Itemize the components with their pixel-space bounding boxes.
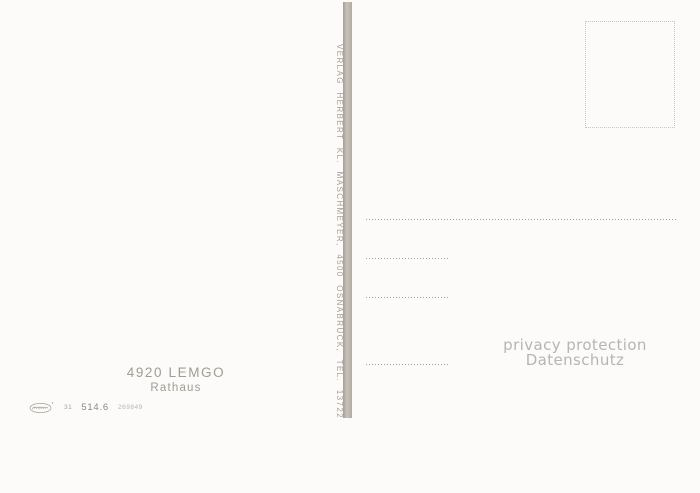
- imprint-prefix: 31: [64, 404, 72, 411]
- privacy-watermark-line2: Datenschutz: [480, 353, 670, 368]
- address-line: [366, 258, 450, 259]
- address-line: [366, 297, 450, 298]
- imprint-series-number: 514.6: [81, 402, 109, 413]
- caption-town: 4920 LEMGO: [106, 364, 246, 381]
- privacy-watermark: privacy protection Datenschutz: [480, 338, 670, 368]
- address-line: [366, 219, 676, 220]
- center-divider-line: [343, 2, 352, 418]
- printer-script-logo-icon: [29, 401, 55, 414]
- stamp-placeholder-box: [585, 21, 675, 128]
- location-caption: 4920 LEMGO Rathaus: [106, 364, 246, 395]
- publisher-imprint-vertical-text: VERLAG HERBERT KL. MASCHMEYER, 4500 OSNA…: [330, 44, 344, 380]
- caption-subject: Rathaus: [106, 381, 246, 395]
- printer-imprint: 31 514.6 269849: [29, 399, 143, 415]
- postcard-back: VERLAG HERBERT KL. MASCHMEYER, 4500 OSNA…: [0, 0, 700, 493]
- imprint-order-code: 269849: [118, 404, 143, 411]
- address-line: [366, 364, 450, 365]
